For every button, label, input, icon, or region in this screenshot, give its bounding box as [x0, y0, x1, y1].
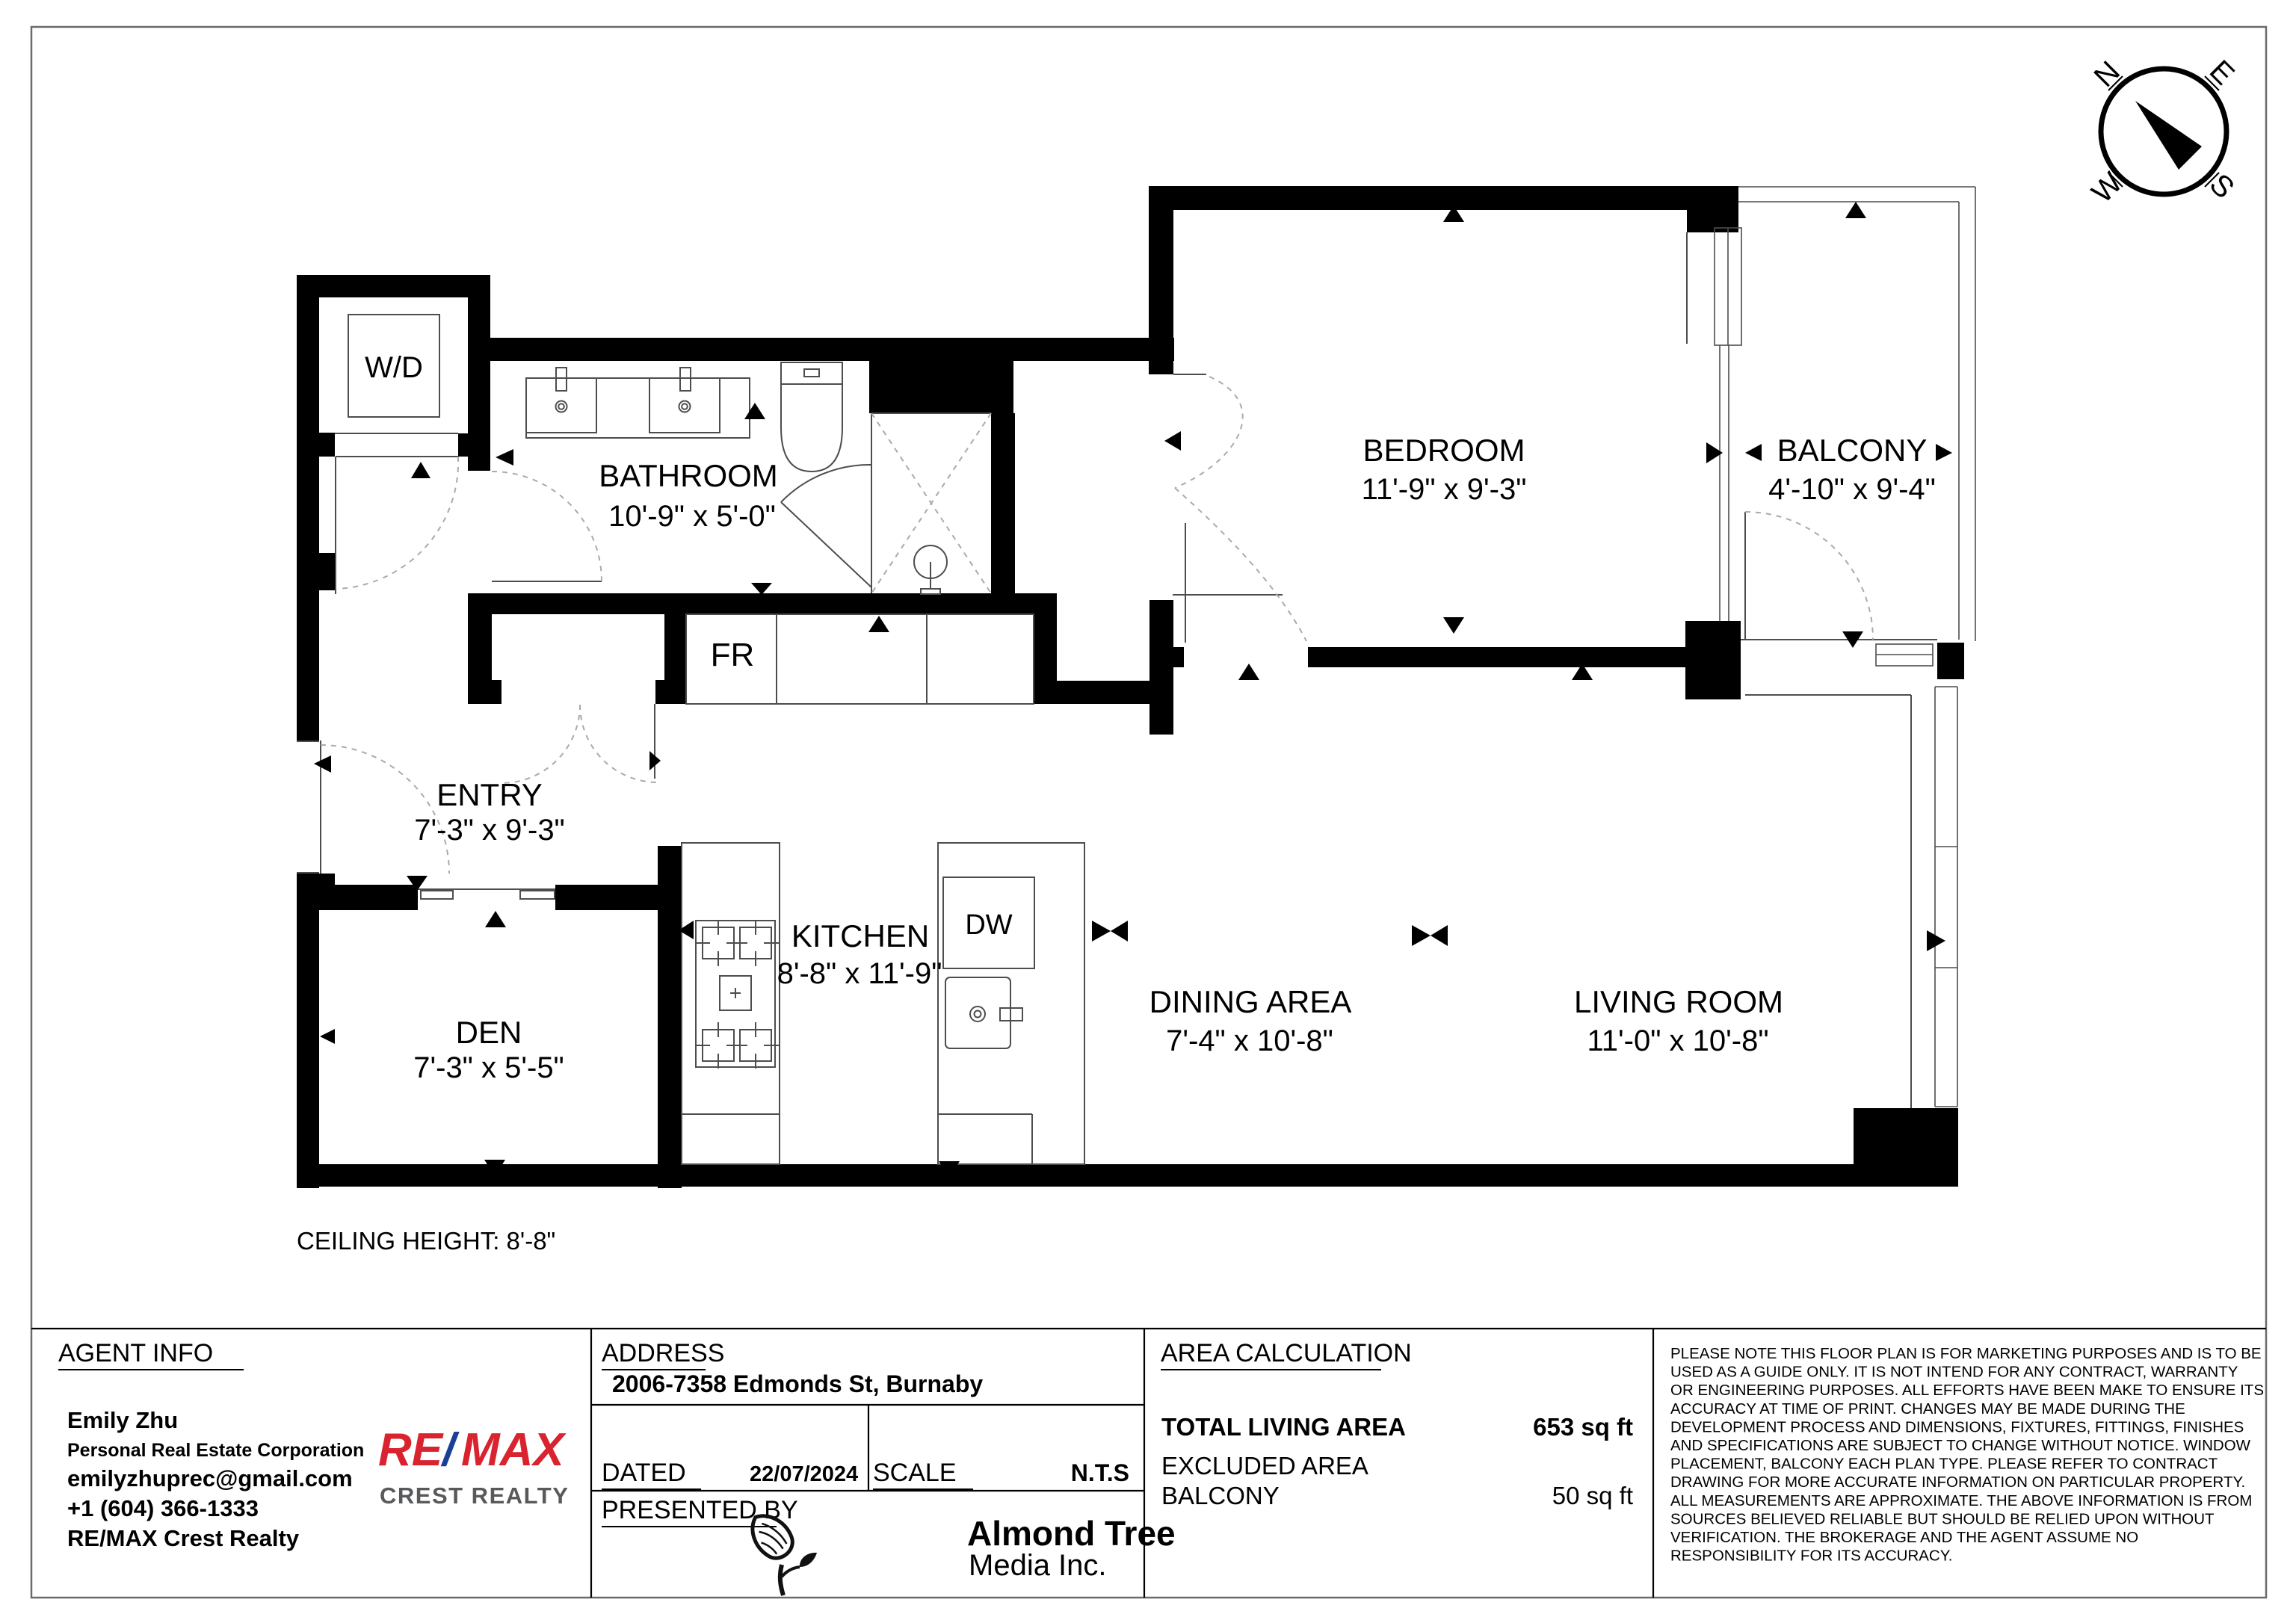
svg-text:USED AS A GUIDE ONLY. IT IS NO: USED AS A GUIDE ONLY. IT IS NOT INTEND F… [1670, 1364, 2238, 1381]
svg-text:Media Inc.: Media Inc. [969, 1549, 1107, 1582]
svg-text:TOTAL LIVING AREA: TOTAL LIVING AREA [1161, 1413, 1406, 1441]
svg-text:W/D: W/D [365, 351, 423, 384]
svg-text:AGENT INFO: AGENT INFO [58, 1339, 213, 1367]
svg-text:ACCURACY AT TIME OF PRINT. CHA: ACCURACY AT TIME OF PRINT. CHANGES MAY B… [1670, 1400, 2185, 1418]
svg-text:ALL MEASUREMENTS ARE APPROXIMA: ALL MEASUREMENTS ARE APPROXIMATE. THE AB… [1670, 1492, 2252, 1509]
svg-text:RESPONSIBILITY FOR ITS ACCURAC: RESPONSIBILITY FOR ITS ACCURACY. [1670, 1548, 1952, 1565]
svg-text:4'-10" x 9'-4": 4'-10" x 9'-4" [1768, 473, 1936, 506]
svg-text:DATED: DATED [602, 1459, 686, 1487]
svg-text:Almond Tree: Almond Tree [967, 1514, 1176, 1553]
svg-text:DRAWING FOR MORE ACCURATE INFO: DRAWING FOR MORE ACCURATE INFORMATION ON… [1670, 1474, 2245, 1491]
svg-text:11'-0" x 10'-8": 11'-0" x 10'-8" [1587, 1024, 1768, 1057]
svg-text:SCALE: SCALE [873, 1459, 957, 1487]
svg-text:BATHROOM: BATHROOM [599, 458, 778, 493]
svg-text:VERIFICATION. THE BROKERAGE AN: VERIFICATION. THE BROKERAGE AND THE AGEN… [1670, 1529, 2138, 1546]
svg-text:Personal Real Estate Corporati: Personal Real Estate Corporation [67, 1440, 364, 1461]
svg-text:CREST REALTY: CREST REALTY [380, 1483, 569, 1509]
svg-text:FR: FR [711, 637, 755, 673]
svg-text:SOURCES BELIEVED RELIABLE BUT: SOURCES BELIEVED RELIABLE BUT SHOULD BE … [1670, 1510, 2215, 1527]
svg-text:RE: RE [378, 1424, 444, 1476]
svg-text:DEN: DEN [456, 1015, 522, 1050]
svg-text:MAX: MAX [461, 1424, 567, 1476]
svg-text:RE/MAX Crest Realty: RE/MAX Crest Realty [67, 1525, 300, 1551]
svg-text:N.T.S: N.T.S [1071, 1459, 1129, 1486]
svg-text:emilyzhuprec@gmail.com: emilyzhuprec@gmail.com [67, 1465, 353, 1491]
svg-text:ADDRESS: ADDRESS [602, 1339, 724, 1367]
svg-text:10'-9" x 5'-0": 10'-9" x 5'-0" [608, 500, 776, 533]
svg-text:8'-8" x 11'-9": 8'-8" x 11'-9" [777, 957, 942, 990]
svg-text:7'-4" x 10'-8": 7'-4" x 10'-8" [1166, 1024, 1333, 1057]
svg-text:BALCONY: BALCONY [1777, 433, 1928, 468]
svg-text:BEDROOM: BEDROOM [1363, 433, 1525, 468]
svg-text:11'-9" x 9'-3": 11'-9" x 9'-3" [1362, 473, 1527, 506]
svg-text:AND SPECIFICATIONS ARE SUBJECT: AND SPECIFICATIONS ARE SUBJECT TO CHANGE… [1670, 1437, 2251, 1454]
svg-text:LIVING ROOM: LIVING ROOM [1574, 984, 1783, 1019]
svg-text:22/07/2024: 22/07/2024 [750, 1462, 858, 1486]
svg-text:Emily Zhu: Emily Zhu [67, 1407, 178, 1433]
svg-text:DINING AREA: DINING AREA [1149, 984, 1352, 1019]
svg-text:OR ENGINEERING PURPOSES. ALL E: OR ENGINEERING PURPOSES. ALL EFFORTS HAV… [1670, 1382, 2264, 1399]
svg-text:PLEASE NOTE THIS FLOOR PLAN IS: PLEASE NOTE THIS FLOOR PLAN IS FOR MARKE… [1670, 1345, 2262, 1362]
svg-text:DEVELOPMENT PROCESS AND DIMENS: DEVELOPMENT PROCESS AND DIMENSIONS, FIXT… [1670, 1418, 2244, 1435]
svg-text:CEILING HEIGHT: 8'-8": CEILING HEIGHT: 8'-8" [297, 1227, 555, 1255]
svg-text:BALCONY: BALCONY [1161, 1482, 1280, 1509]
svg-text:KITCHEN: KITCHEN [791, 918, 929, 953]
svg-text:7'-3" x 9'-3": 7'-3" x 9'-3" [414, 814, 565, 847]
svg-text:50 sq ft: 50 sq ft [1552, 1482, 1633, 1509]
svg-text:PLACEMENT, BALCONY EACH PLAN T: PLACEMENT, BALCONY EACH PLAN TYPE. PLEAS… [1670, 1456, 2218, 1473]
svg-text:PRESENTED BY: PRESENTED BY [602, 1496, 798, 1524]
svg-text:2006-7358 Edmonds St, Burnaby: 2006-7358 Edmonds St, Burnaby [612, 1370, 983, 1397]
svg-text:7'-3" x 5'-5": 7'-3" x 5'-5" [413, 1051, 564, 1084]
svg-text:EXCLUDED AREA: EXCLUDED AREA [1161, 1452, 1368, 1480]
svg-text:+1 (604) 366-1333: +1 (604) 366-1333 [67, 1495, 259, 1521]
svg-text:AREA CALCULATION: AREA CALCULATION [1161, 1339, 1412, 1367]
svg-text:DW: DW [965, 909, 1012, 941]
svg-text:653 sq ft: 653 sq ft [1533, 1413, 1633, 1441]
svg-text:ENTRY: ENTRY [436, 777, 543, 812]
